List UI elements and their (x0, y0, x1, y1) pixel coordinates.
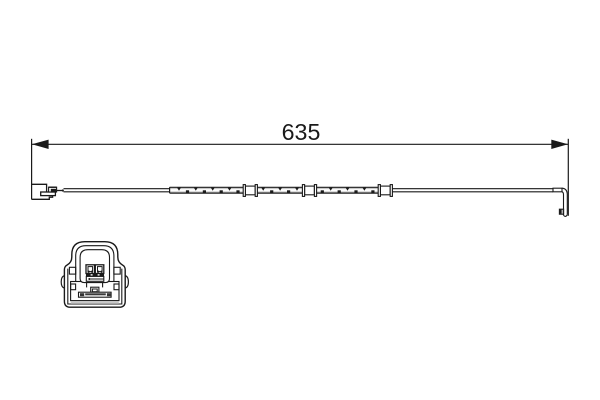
svg-text:635: 635 (282, 119, 321, 145)
